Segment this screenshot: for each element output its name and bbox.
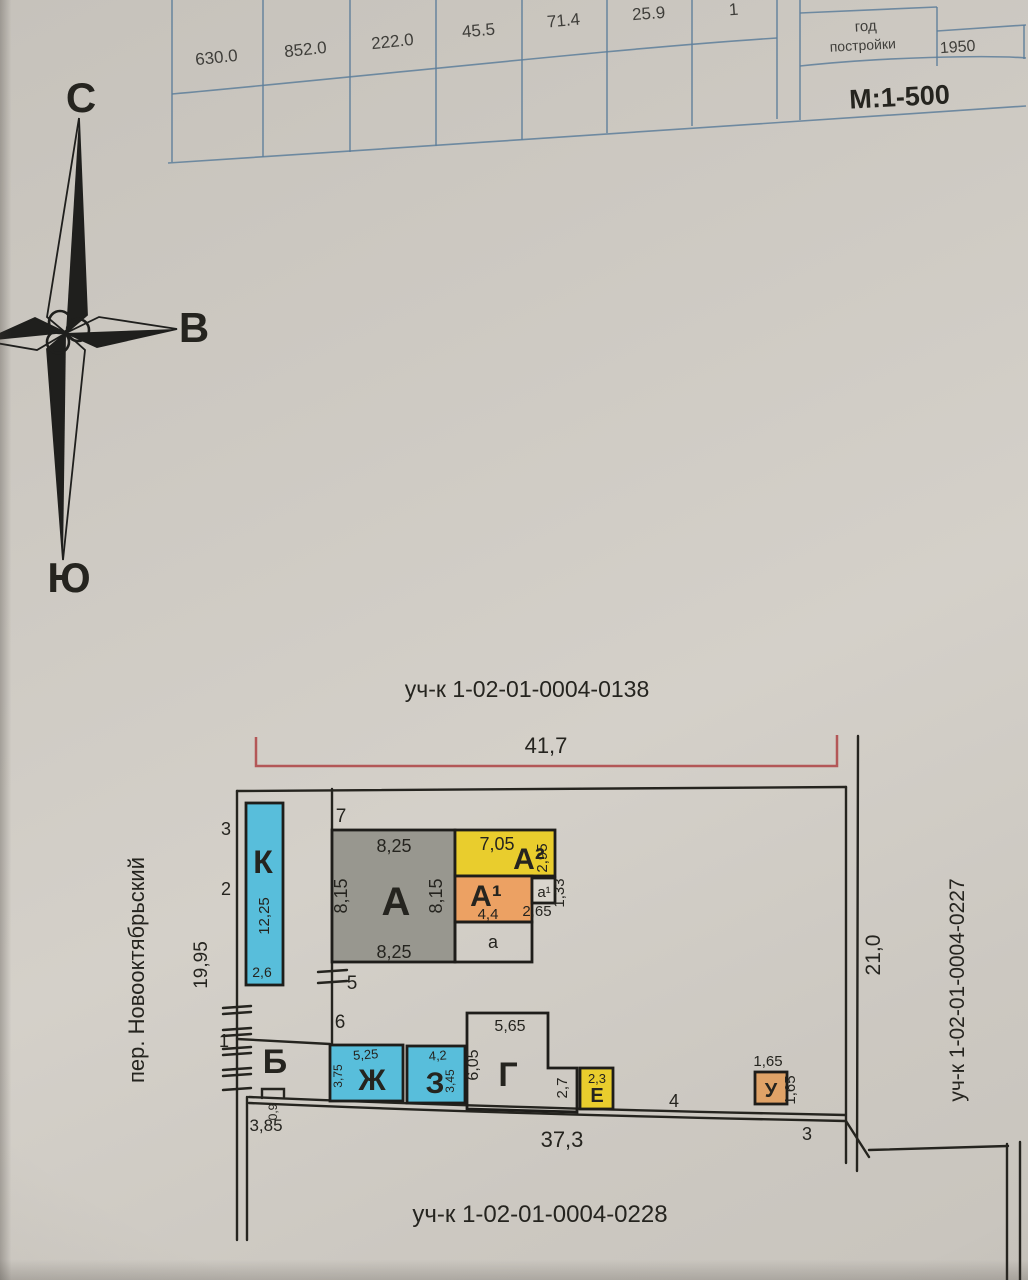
table-cell-value: 25.9 xyxy=(631,3,665,24)
inventory-table: 630.0 852.0 222.0 45.5 71.4 25.9 1 год п… xyxy=(168,0,1026,163)
boundary-top xyxy=(237,787,846,791)
building-A-dim-top: 8,25 xyxy=(376,836,411,856)
building-G-dim-top: 5,65 xyxy=(494,1018,525,1035)
building-U-label: У xyxy=(765,1080,778,1102)
year-built-value: 1950 xyxy=(939,38,976,57)
year-built-label: год xyxy=(854,17,877,35)
porch-a-label: а xyxy=(488,932,499,952)
boundary-bottom-right xyxy=(869,1146,1008,1150)
table-cell-value: 1 xyxy=(728,0,739,19)
building-K-width: 2,6 xyxy=(252,964,272,980)
building-G-label: Г xyxy=(498,1056,517,1094)
dimension-bottom: 37,3 xyxy=(541,1127,584,1152)
table-row-line xyxy=(937,25,1026,31)
building-U-dim-right: 1,65 xyxy=(782,1075,799,1104)
building-G-dim-step: 2,7 xyxy=(554,1078,571,1099)
point-6: 6 xyxy=(335,1012,346,1033)
building-A-dim-right: 8,15 xyxy=(426,878,446,913)
building-U-dim-top: 1,65 xyxy=(753,1053,782,1070)
year-built-label: постройки xyxy=(829,35,896,54)
building-Zh-dim-left: 3,75 xyxy=(331,1064,345,1088)
compass-south-arm xyxy=(47,333,66,560)
building-Z-dim-top: 4,2 xyxy=(428,1047,447,1063)
building-A1-dim-bottom: 4,4 xyxy=(478,906,499,923)
point-1: 1 xyxy=(219,1031,229,1051)
table-cell-value: 45.5 xyxy=(461,20,496,42)
table-bottom-line xyxy=(168,106,1026,163)
plan-drawing: 630.0 852.0 222.0 45.5 71.4 25.9 1 год п… xyxy=(0,0,1028,1280)
building-B-label: Б xyxy=(263,1043,287,1081)
scanned-page: 630.0 852.0 222.0 45.5 71.4 25.9 1 год п… xyxy=(0,0,1028,1280)
point-7: 7 xyxy=(336,806,347,827)
compass-east-label: В xyxy=(179,304,209,351)
building-A-dim-left: 8,15 xyxy=(331,878,351,913)
building-K-label: К xyxy=(253,844,273,880)
point-2: 2 xyxy=(221,879,231,899)
table-row-line xyxy=(800,57,1026,66)
parcel-number-bottom: уч-к 1-02-01-0004-0228 xyxy=(412,1201,667,1228)
building-Zh-dim-top: 5,25 xyxy=(353,1046,379,1063)
parcel-number-top: уч-к 1-02-01-0004-0138 xyxy=(405,676,650,702)
parcel-number-right: уч-к 1-02-01-0004-0227 xyxy=(946,878,969,1101)
table-row-line xyxy=(800,7,937,13)
dimension-top: 41,7 xyxy=(525,733,568,758)
building-K xyxy=(246,803,283,985)
table-cell-value: 71.4 xyxy=(546,10,581,32)
point-3: 3 xyxy=(221,819,231,839)
compass-south-label: Ю xyxy=(47,554,90,601)
dimension-left: 19,95 xyxy=(191,941,212,989)
dimension-notch: 0,9 xyxy=(266,1103,280,1120)
map-scale-label: М:1-500 xyxy=(849,79,951,114)
building-Z-label: З xyxy=(426,1067,445,1100)
table-cell-value: 630.0 xyxy=(194,46,238,69)
building-A2-dim-right: 2,95 xyxy=(534,843,551,872)
building-A-label: А xyxy=(382,880,411,924)
porch-a1-label: а¹ xyxy=(537,884,550,901)
building-G-dim-left: 6,05 xyxy=(465,1049,482,1080)
point-4: 4 xyxy=(669,1091,679,1111)
table-cell-value: 852.0 xyxy=(283,38,327,61)
porch-a1-dim-bottom: 2,65 xyxy=(522,903,551,920)
building-A-dim-bottom: 8,25 xyxy=(376,942,411,962)
building-Z-dim-right: 3,45 xyxy=(443,1069,457,1093)
point-3-bottom: 3 xyxy=(802,1124,812,1144)
table-cell-value: 222.0 xyxy=(370,30,414,53)
building-Zh-label: Ж xyxy=(357,1064,386,1097)
site-plan: уч-к 1-02-01-0004-0138 41,7 xyxy=(124,676,1020,1280)
building-K-height: 12,25 xyxy=(256,897,273,935)
street-name: пер. Новооктябрьский xyxy=(124,857,149,1083)
compass-rose: С В Ю xyxy=(0,74,209,601)
compass-east-arm xyxy=(66,329,177,347)
compass-north-label: С xyxy=(66,74,96,121)
boundary-right-outer xyxy=(857,736,858,1171)
point-5: 5 xyxy=(347,973,358,994)
porch-a1-dim-right: 1,33 xyxy=(551,878,568,907)
building-E-dim-top: 2,3 xyxy=(588,1071,606,1086)
building-A2-dim-top: 7,05 xyxy=(479,834,514,854)
building-E-label: Е xyxy=(590,1085,603,1107)
dimension-right: 21,0 xyxy=(862,935,885,976)
